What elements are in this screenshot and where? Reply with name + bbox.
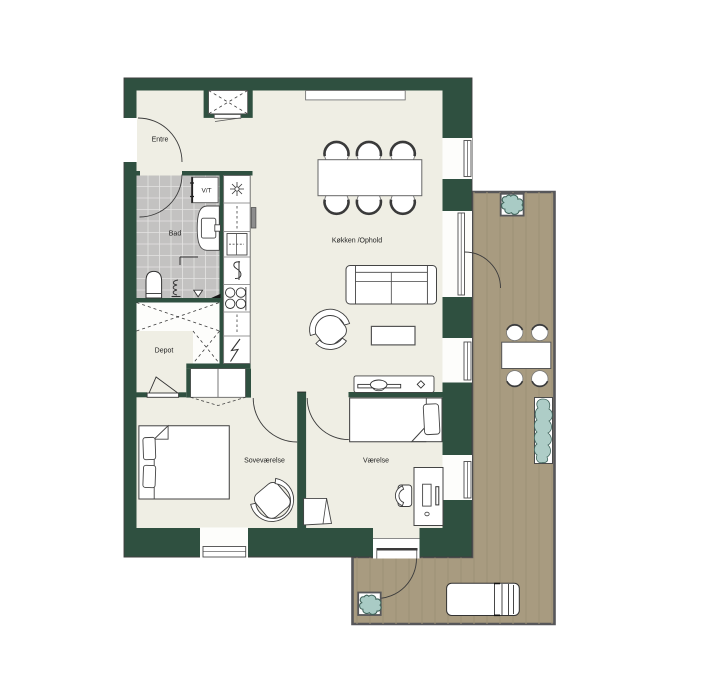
- svg-text:Værelse: Værelse: [363, 458, 389, 465]
- svg-text:Køkken /Ophold: Køkken /Ophold: [332, 238, 382, 245]
- svg-text:Depot: Depot: [155, 348, 174, 355]
- svg-text:Soveværelse: Soveværelse: [244, 458, 285, 465]
- svg-text:V/T: V/T: [201, 188, 211, 195]
- svg-text:Entre: Entre: [152, 137, 169, 144]
- svg-text:Bad: Bad: [169, 231, 182, 238]
